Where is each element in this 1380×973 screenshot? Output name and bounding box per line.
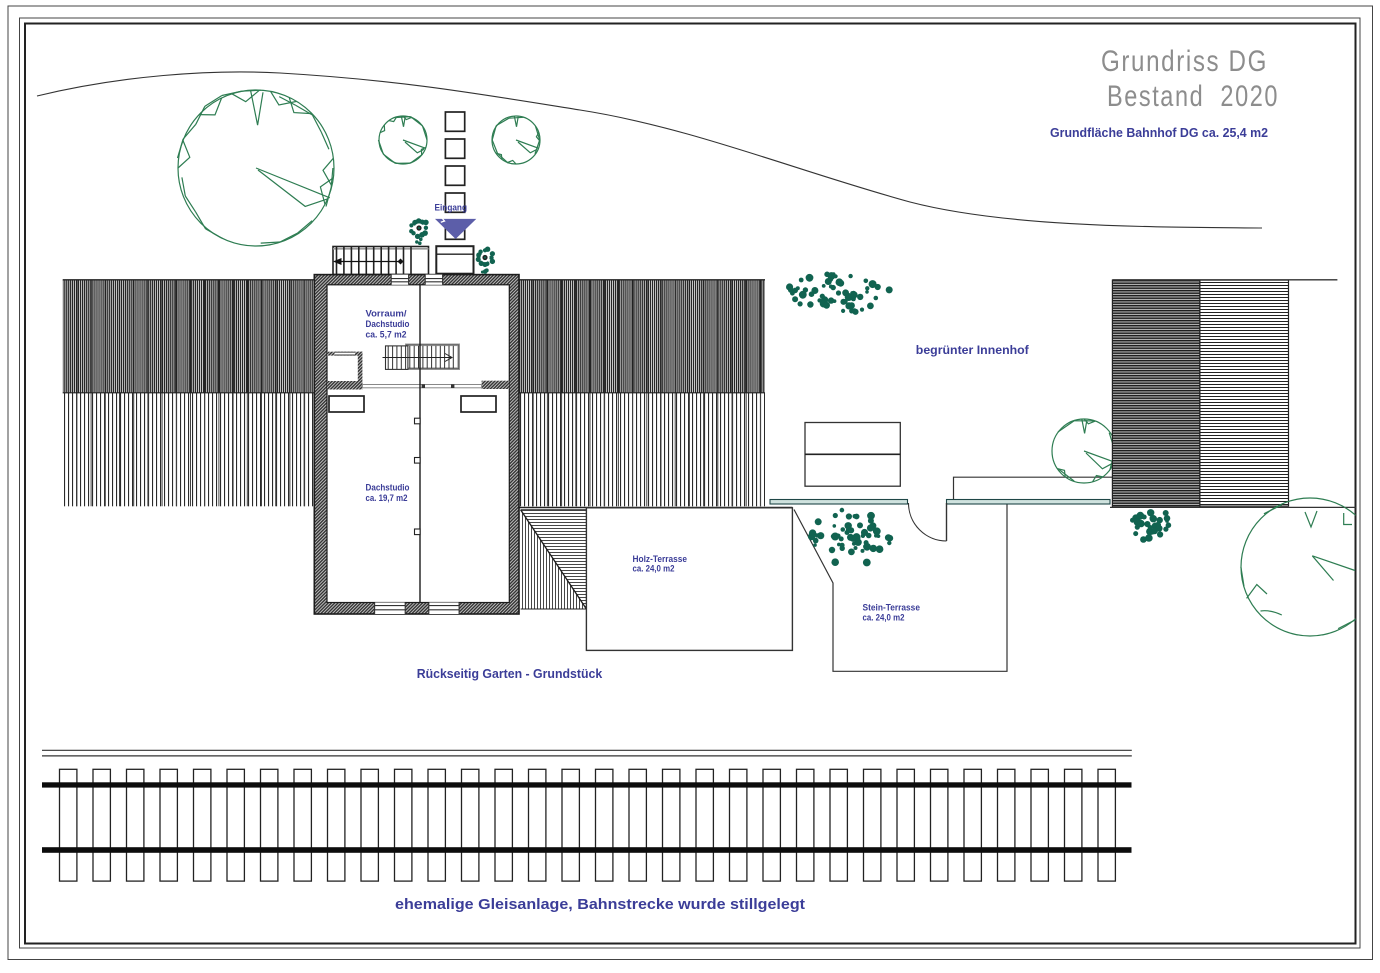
svg-text:begrünter Innenhof: begrünter Innenhof	[916, 343, 1030, 357]
svg-text:Holz-Terrasse: Holz-Terrasse	[633, 554, 688, 564]
svg-text:Vorraum/: Vorraum/	[366, 309, 408, 319]
svg-text:Dachstudio: Dachstudio	[366, 483, 410, 493]
svg-text:Rückseitig Garten - Grundstück: Rückseitig Garten - Grundstück	[417, 667, 603, 681]
svg-text:Stein-Terrasse: Stein-Terrasse	[863, 603, 921, 613]
svg-text:Eingang: Eingang	[435, 203, 468, 214]
svg-text:Grundriss DG: Grundriss DG	[1101, 45, 1268, 78]
svg-text:ca. 5,7 m2: ca. 5,7 m2	[366, 330, 407, 340]
svg-text:ehemalige Gleisanlage, Bahnstr: ehemalige Gleisanlage, Bahnstrecke wurde…	[395, 896, 805, 913]
svg-text:Dachstudio: Dachstudio	[366, 319, 410, 329]
svg-text:Grundfläche Bahnhof DG ca. 25,: Grundfläche Bahnhof DG ca. 25,4 m2	[1050, 126, 1268, 140]
svg-text:ca. 24,0 m2: ca. 24,0 m2	[863, 613, 905, 623]
svg-text:ca. 24,0 m2: ca. 24,0 m2	[633, 564, 675, 574]
svg-text:Bestand 2020: Bestand 2020	[1107, 80, 1279, 113]
svg-text:ca. 19,7 m2: ca. 19,7 m2	[366, 493, 408, 503]
